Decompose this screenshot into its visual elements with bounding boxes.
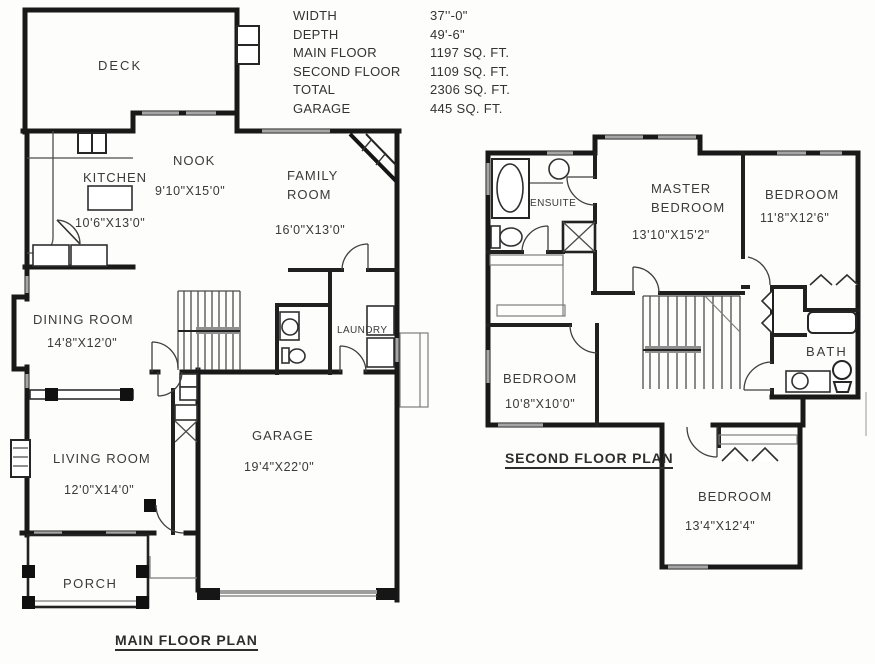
stove-icon (92, 133, 106, 153)
powder-room-fixtures (280, 312, 305, 363)
fireplace (350, 134, 396, 181)
summary-row: WIDTH37''-0" (293, 8, 468, 23)
bedroom-left-label: BEDROOM (503, 369, 577, 388)
deck-stair (237, 45, 259, 64)
dining-room-dims: 14'8"X12'0" (47, 336, 117, 350)
summary-value: 37''-0" (430, 8, 468, 23)
second-floor-plan-title: SECOND FLOOR PLAN (505, 450, 673, 469)
bedroom-top-right-label: BEDROOM (765, 185, 839, 204)
kitchen-dims: 10'6"X13'0" (75, 216, 145, 230)
family-room-dims: 16'0"X13'0" (275, 223, 345, 237)
living-room-dims: 12'0"X14'0" (64, 483, 134, 497)
bay-window (11, 440, 30, 477)
dryer-icon (367, 338, 394, 367)
toilet-tank (282, 348, 289, 363)
bath-label: BATH (806, 342, 848, 361)
half-wall-post (45, 388, 58, 401)
walkin-closet (490, 255, 565, 316)
garage-step (180, 387, 197, 400)
kitchen-cabinet (33, 245, 69, 266)
kitchen-fixtures (27, 131, 133, 266)
summary-row: MAIN FLOOR1197 SQ. FT. (293, 45, 509, 60)
summary-row: DEPTH49'-6" (293, 27, 465, 42)
porch-post (22, 596, 35, 609)
deck-label: DECK (98, 56, 142, 75)
toilet-icon (500, 228, 522, 246)
floorplan-page: WIDTH37''-0" DEPTH49'-6" MAIN FLOOR1197 … (0, 0, 875, 664)
porch-post (22, 565, 35, 578)
garage-step (180, 374, 197, 387)
half-wall-post (120, 388, 133, 401)
sink-icon (282, 319, 298, 335)
porch-label: PORCH (63, 574, 117, 593)
summary-value: 1197 SQ. FT. (430, 45, 509, 60)
main-floor-plan-title: MAIN FLOOR PLAN (115, 632, 258, 651)
front-door-leaf (144, 499, 156, 512)
family-room-label: FAMILY ROOM (287, 166, 347, 204)
summary-label: WIDTH (293, 8, 430, 23)
summary-value: 49'-6" (430, 27, 465, 42)
toilet-icon (833, 361, 851, 379)
sink-icon (549, 159, 569, 179)
sink-icon (792, 373, 808, 389)
laundry-fixtures (367, 306, 394, 367)
deck-stair (237, 26, 259, 45)
laundry-label: LAUNDRY (337, 325, 387, 336)
dining-room-label: DINING ROOM (33, 310, 134, 329)
bedroom-bottom-dims: 13'4"X12'4" (685, 519, 755, 533)
master-bedroom-dims: 13'10"X15'2" (632, 228, 710, 242)
bedroom-top-right-dims: 11'8"X12'6" (760, 211, 829, 225)
stairs-main (178, 291, 240, 370)
porch-post (136, 596, 149, 609)
summary-value: 2306 SQ. FT. (430, 82, 510, 97)
bedroom-left-dims: 10'8"X10'0" (505, 397, 575, 411)
summary-label: DEPTH (293, 27, 430, 42)
garage-dims: 19'4"X22'0" (244, 460, 314, 474)
door-arcs-main (144, 244, 368, 533)
summary-label: SECOND FLOOR (293, 64, 430, 79)
toilet-icon (289, 349, 305, 363)
nook-dims: 9'10"X15'0" (155, 184, 225, 198)
kitchen-cabinet (71, 245, 107, 266)
stairs-second (643, 296, 740, 389)
summary-label: GARAGE (293, 101, 430, 116)
stove-icon (78, 133, 92, 153)
summary-label: MAIN FLOOR (293, 45, 430, 60)
bedroom-bottom-label: BEDROOM (698, 487, 772, 506)
bathtub-icon (808, 312, 856, 333)
toilet-tank (491, 226, 500, 248)
door-arcs-second (522, 177, 772, 457)
summary-row: SECOND FLOOR1109 SQ. FT. (293, 64, 509, 79)
nook-label: NOOK (173, 151, 215, 170)
porch-post (136, 565, 149, 578)
garage-label: GARAGE (252, 426, 314, 445)
summary-value: 445 SQ. FT. (430, 101, 503, 116)
porch (22, 535, 197, 609)
garage-door (197, 588, 397, 600)
kitchen-label: KITCHEN (83, 168, 147, 187)
ensuite-label: ENSUITE (530, 198, 576, 209)
summary-value: 1109 SQ. FT. (430, 64, 509, 79)
kitchen-island (88, 186, 132, 210)
living-room-label: LIVING ROOM (53, 449, 151, 468)
summary-row: GARAGE445 SQ. FT. (293, 101, 503, 116)
summary-row: TOTAL2306 SQ. FT. (293, 82, 510, 97)
floorplan-drawing (0, 0, 875, 664)
summary-label: TOTAL (293, 82, 430, 97)
master-bedroom-label: MASTER BEDROOM (651, 179, 727, 217)
